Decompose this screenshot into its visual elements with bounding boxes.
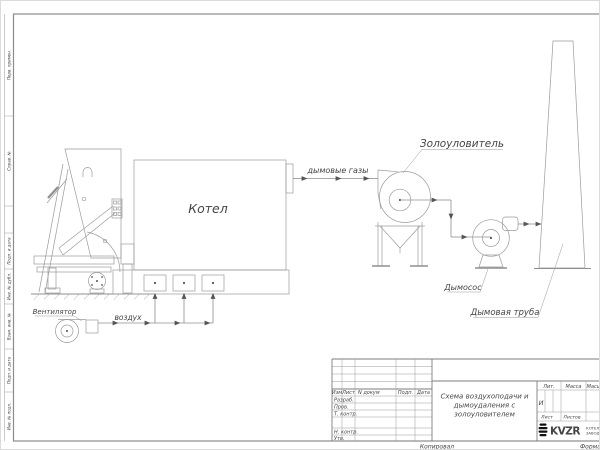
fan-label: Вентилятор xyxy=(33,308,77,316)
hopper-handle-icon xyxy=(83,168,92,178)
boiler-base xyxy=(113,270,289,294)
connection-dot xyxy=(154,282,156,284)
drawing-sheet: Перв. примен. Справ. № Подп. и дата Инв.… xyxy=(0,0,600,450)
row-razrab: Разраб. xyxy=(334,397,354,403)
list-label: Лист xyxy=(540,414,553,420)
scale-header: Масш xyxy=(587,384,600,390)
boiler-connection xyxy=(121,244,134,264)
frame-border xyxy=(14,14,600,441)
sheet-frame: Перв. примен. Справ. № Подп. и дата Инв.… xyxy=(5,14,600,441)
fan: Вентилятор xyxy=(33,308,98,343)
row-utv: Утв. xyxy=(334,436,345,442)
format-label: Формат xyxy=(580,443,600,450)
margin-label: Перв. примен. xyxy=(7,50,12,80)
air-label: воздух xyxy=(114,313,142,322)
kvzr-logo-text: KVZR xyxy=(550,426,580,438)
lit-value: И xyxy=(539,399,544,407)
ash-collector: Золоуловитель xyxy=(372,138,504,266)
ground-line xyxy=(31,294,154,300)
col-podp: Подп. xyxy=(398,390,413,396)
listov-label: Листов xyxy=(562,414,580,420)
fan-outlet xyxy=(86,320,98,333)
margin-label: Подп. и дата xyxy=(7,237,12,265)
boiler-connection xyxy=(123,264,132,293)
pivot-point xyxy=(82,197,86,201)
cyclone-inlet xyxy=(378,170,398,172)
smoke-exhauster-label-leader xyxy=(480,269,488,292)
drawing-title-line3: золоуловителем xyxy=(454,411,516,419)
margin-label: Подп. и дата xyxy=(7,356,12,384)
ash-collector-label-leader xyxy=(403,150,422,174)
massa-header: Масса xyxy=(566,384,582,390)
connection-dot xyxy=(183,282,185,284)
flue-gas-line: дымовые газы xyxy=(293,166,378,179)
boiler-label: Котел xyxy=(188,201,227,216)
boiler: Котел xyxy=(113,160,293,294)
margin-label: Инв. № подл. xyxy=(7,403,12,431)
chimney: Дымовая труба xyxy=(470,41,591,318)
exhauster-pedestal xyxy=(479,255,503,267)
kvzr-logo: KVZR КОТЕЛЬ ЗАВОД xyxy=(539,424,600,438)
stoker-assembly xyxy=(31,149,154,300)
brace xyxy=(39,164,63,292)
kvzr-logo-icon xyxy=(539,424,548,437)
lit-header: Лит. xyxy=(542,384,555,390)
chimney-body xyxy=(539,41,585,268)
fuel-hopper xyxy=(65,149,121,258)
col-izm: Изм xyxy=(332,390,342,396)
base-beam xyxy=(34,256,114,264)
drawing-canvas: Перв. примен. Справ. № Подп. и дата Инв.… xyxy=(1,1,600,450)
margin-label: Взам. инв. № xyxy=(7,313,12,340)
title-block: Изм Лист N докум Подп. Дата Разраб. Пров… xyxy=(332,359,600,442)
exhauster-discharge xyxy=(503,217,519,231)
fan-label-leader xyxy=(74,316,82,321)
exhauster-axis-dot xyxy=(490,237,492,239)
ash-collector-outlet-line xyxy=(400,200,491,237)
feeder-arm xyxy=(59,199,122,255)
col-doc: N докум xyxy=(358,390,380,396)
copied-label: Копировал xyxy=(420,443,454,450)
drive-motor xyxy=(89,273,106,290)
cyclone-support xyxy=(372,222,428,266)
drawing-title-line2: дымоудаления с xyxy=(453,402,516,410)
drawing-title-line1: Схема воздухоподачи и xyxy=(440,393,529,401)
connection-dot xyxy=(212,282,214,284)
margin-label: Справ. № xyxy=(7,151,12,170)
smoke-exhauster: Дымосос xyxy=(443,217,541,292)
company-line2: ЗАВОД xyxy=(586,431,600,436)
ash-collector-label: Золоуловитель xyxy=(420,138,504,150)
fan-axis-dot xyxy=(66,330,68,332)
row-prov: Пров. xyxy=(334,404,349,410)
row-nkontr: Н. контр. xyxy=(334,429,358,435)
col-list: Лист xyxy=(341,390,356,396)
chimney-label-leader xyxy=(538,244,563,318)
row-tkontr: Т. контр. xyxy=(334,411,357,417)
sheet-footer: Копировал Формат xyxy=(420,443,600,450)
margin-cell-labels: Перв. примен. Справ. № Подп. и дата Инв.… xyxy=(7,50,12,430)
cyclone-casing xyxy=(380,172,431,223)
col-data: Дата xyxy=(416,390,430,396)
margin-label: Инв. № дубл. xyxy=(7,273,12,300)
flue-gas-label: дымовые газы xyxy=(307,166,369,175)
smoke-exhauster-label: Дымосос xyxy=(443,283,482,292)
flue-outlet xyxy=(286,164,293,193)
lever-handle xyxy=(48,187,58,198)
feed-chute-arc xyxy=(87,232,120,272)
chimney-label: Дымовая труба xyxy=(470,308,540,318)
